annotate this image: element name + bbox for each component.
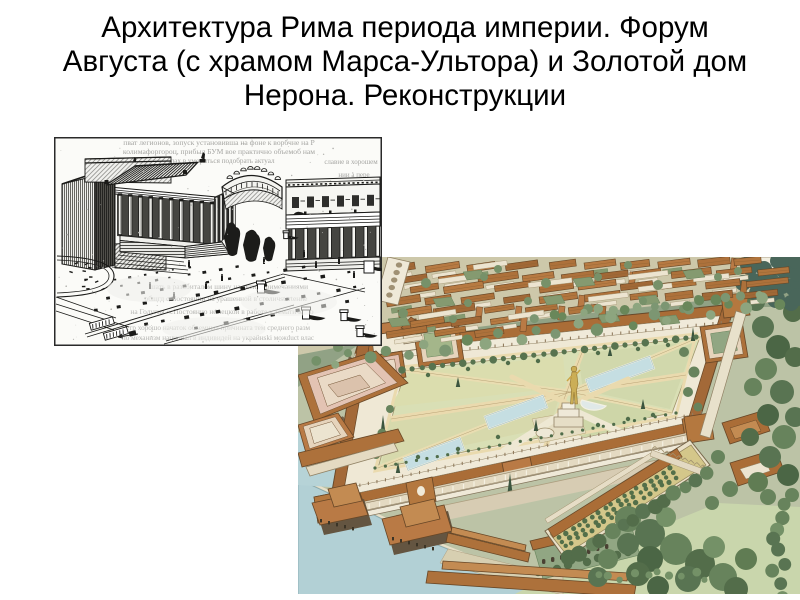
svg-text:славие в хорошем: славие в хорошем [324, 158, 378, 166]
svg-text:пват легионов, зопуск установи: пват легионов, зопуск установивша на фон… [123, 138, 314, 147]
svg-text:колимафоргороц, прибыл БУМ вое: колимафоргороц, прибыл БУМ вое практично… [123, 147, 315, 156]
